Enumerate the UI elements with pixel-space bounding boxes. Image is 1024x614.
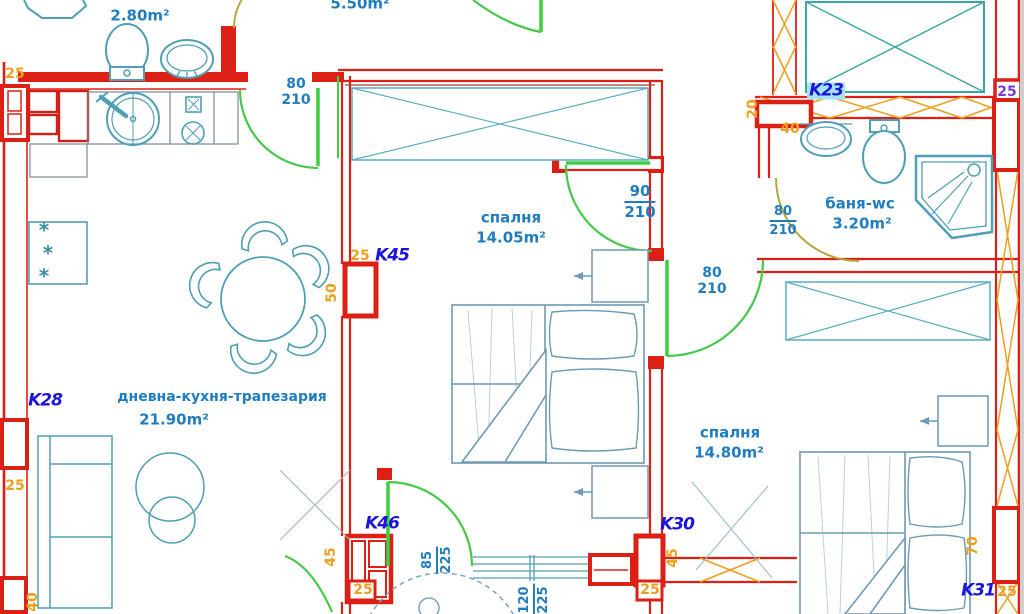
door-dim-bedroom-mid: 90 210 [624,184,655,220]
column-label-k30: K30 [660,517,694,534]
faucet [101,97,126,116]
door-dim-width: 80 [769,205,796,222]
nightstand [592,466,648,518]
window-bedroom-right [994,508,1019,582]
door-dim-height: 210 [769,222,796,237]
fridge-star: * [39,224,49,236]
wall-mark: 70 [966,536,980,555]
wc-small-door-swing [234,0,290,28]
column-k30 [636,536,663,585]
dining-table [221,257,305,341]
window-dim-balcony-mid: 120 225 [518,583,550,614]
room-area-wc-small: 2.80m² [110,9,169,24]
room-name-bath: баня-wc [825,197,895,212]
wardrobe-mid [352,88,648,160]
room-area-bedroom-mid: 14.05m² [476,231,546,246]
kitchen-counter [88,92,238,144]
wall-mark: 50 [325,283,339,302]
nightstand [592,250,648,302]
window-dim-balcony-left: 85 225 [421,546,453,573]
door-dim-kitchen-wc: 80 210 [281,77,310,107]
pillow [908,535,967,611]
bed-mid [452,305,644,463]
window-dim-height: 225 [535,583,550,614]
door-dim-height: 210 [697,280,726,296]
wall-mark: 25 [5,67,24,81]
wall-mark: 25 [353,583,372,597]
kitchen-sink [96,92,159,145]
wall-mark: 25 [997,585,1016,599]
bed-right [800,452,970,614]
nightstand-right [920,396,988,446]
room-name-living: дневна-кухня-трапезария [117,390,327,404]
door-dim-width: 80 [697,266,726,280]
shower-tray-small [24,0,86,18]
window-bath [994,100,1019,170]
wall-mark: 25 [640,583,659,597]
wall-mark: 25 [997,85,1016,99]
wall-mark: 25 [5,479,24,493]
wardrobe-right [786,282,990,340]
pillow [550,310,638,359]
door-dim-height: 210 [624,203,655,220]
column-label-k45: K45 [375,248,409,265]
room-name-bedroom-mid: спалня [481,211,541,226]
kitchen-cabinet-1 [29,91,57,112]
door-dim-width: 80 [281,77,310,91]
room-area-hall: 5.50m² [330,0,389,12]
sofa [38,436,112,608]
wall-mark: 20 [746,99,760,118]
room-area-living: 21.90m² [139,413,209,428]
column-k45 [345,264,376,316]
kitchen-cabinet-3 [59,91,88,141]
room-area-bath: 3.20m² [832,217,891,232]
bath-fixtures [800,120,992,238]
window-left-mid [2,420,27,468]
chair [184,257,221,308]
wall-mark: 45 [666,548,680,567]
chair [238,218,288,252]
door-dim-bedroom-right: 80 210 [697,266,726,296]
column-label-k46: K46 [365,516,399,533]
room-name-wc-small: баня-wc [93,0,163,1]
shower-head [968,164,980,176]
door-dim-width: 90 [624,184,655,203]
kitchen [29,91,238,177]
room-name-bedroom-right: спалня [700,426,760,441]
chair [227,343,277,377]
screen-edge-strip [1020,0,1024,614]
plan-linework [0,0,1024,614]
wall-mark: 45 [324,547,338,566]
toilet-bowl [863,131,905,183]
nightstand [938,396,988,446]
floor-lamp [136,453,204,543]
shower-tray [916,156,992,238]
pillow [908,457,965,527]
column-label-k28: K28 [28,393,62,410]
wall-mark: 40 [26,592,40,611]
column-label-k23: K23 [807,83,845,100]
column-label-k31: K31 [961,583,995,600]
door-dim-height: 210 [281,91,310,107]
wall-mark: 25 [350,249,369,263]
window-dim-height: 225 [438,546,453,573]
elevator-shaft [806,2,984,92]
fridge-star: * [39,270,49,282]
fridge-star: * [43,247,53,259]
kitchen-counter-return [30,144,87,177]
door-dim-bath: 80 210 [769,205,796,237]
stove [182,97,204,144]
wall-mark: 40 [780,122,799,136]
pillow [550,369,639,451]
dining-set [184,218,337,377]
room-area-bedroom-right: 14.80m² [694,446,764,461]
kitchen-cabinet-2 [29,115,57,134]
fridge-symbol: * * * [34,224,54,282]
window-dim-width: 120 [518,583,535,614]
floor-plan: баня-wc 2.80m² 5.50m² спалня 14.05m² бан… [0,0,1024,614]
window-left-bottom [2,578,26,612]
window-dim-width: 85 [421,546,438,573]
balcony-window [473,555,588,581]
hall-door-swing [473,0,541,32]
